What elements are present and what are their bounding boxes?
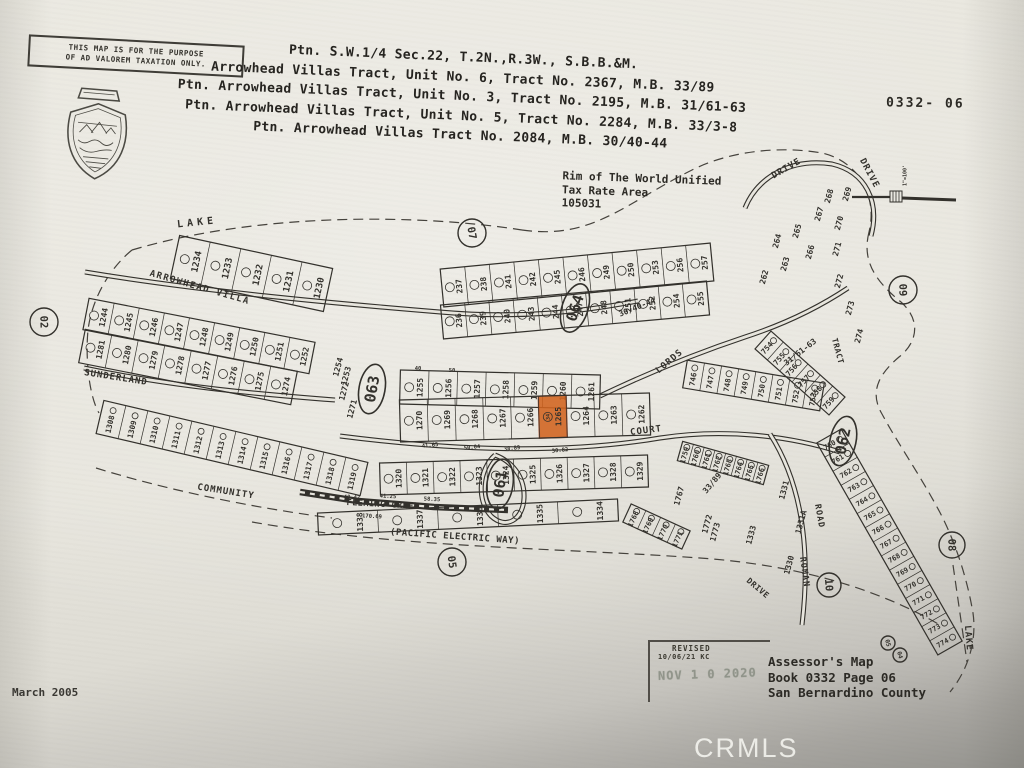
map-label: 31/61-63	[782, 337, 818, 368]
parcel-number: 1326	[555, 464, 565, 484]
map-label: 1330	[782, 554, 796, 575]
parcel-number: 253	[651, 260, 661, 275]
map-label: 40	[415, 366, 422, 372]
revised-date: 10/06/21 KC	[658, 653, 770, 661]
street-name-label: LAKE	[962, 625, 974, 651]
lot-circle	[892, 534, 900, 542]
lot-circle	[175, 423, 182, 430]
parcel-number: 1322	[448, 467, 458, 487]
parcel-number: 1248	[198, 327, 211, 348]
parcel-number: 773	[927, 622, 942, 635]
lot-circle	[218, 369, 229, 380]
parcel-number: 772	[919, 608, 934, 621]
parcel-strip: 12701269126812671266341265126412631262	[399, 393, 650, 442]
page-number: 09	[896, 283, 908, 296]
map-label: 1331	[777, 479, 791, 500]
lot-circle	[852, 463, 860, 471]
page-number: 05	[445, 555, 459, 569]
lot-circle	[445, 282, 455, 292]
parcel-number: 1230	[313, 277, 327, 300]
crmls-watermark: CRMLS	[694, 733, 799, 764]
parcel-number: 1252	[298, 346, 311, 367]
revision-box: REVISED 10/06/21 KC NOV 1 0 2020	[648, 640, 770, 702]
lot-circle	[114, 315, 125, 326]
parcel-number: 762	[838, 467, 853, 480]
lot-circle	[519, 385, 528, 394]
parcel-number: 1268	[470, 409, 480, 429]
parcel-number: 1257	[473, 379, 482, 399]
lot-circle	[940, 619, 948, 627]
block-number: 061	[489, 469, 511, 498]
lot-circle	[617, 266, 627, 276]
parcel-number: 1265	[554, 407, 564, 427]
lot-circle	[464, 472, 473, 481]
street-name-label: SUNDERLAND	[83, 368, 148, 388]
parcel-number: 239	[478, 310, 488, 325]
map-label: 58.35	[424, 496, 441, 503]
highlighted-lot-number: 34	[545, 414, 551, 420]
parcel-number: 1249	[223, 331, 236, 352]
map-label: 262	[758, 269, 770, 285]
parcel-number: 1328	[609, 462, 619, 482]
parcel-number: 1309	[126, 419, 139, 439]
lot-circle	[884, 520, 892, 528]
lot-circle	[932, 605, 940, 613]
parcel-number: 764	[855, 495, 870, 508]
parcel-number: 774	[935, 637, 950, 650]
parcel-strip: 1255125612571258125912601261	[400, 370, 601, 409]
parcel-number: 1312	[192, 435, 205, 455]
lot-circle	[860, 478, 868, 486]
parcel-number: 767	[879, 538, 894, 551]
parcel-number: 749	[739, 380, 750, 395]
parcel-strip: 1768176917701771	[622, 504, 690, 550]
parcel-number: 1270	[415, 411, 425, 431]
street-name-label: (PACIFIC ELECTRIC WAY)	[390, 528, 521, 547]
tax-rate-area-label: Rim of The World Unified Tax Rate Area 1…	[561, 169, 721, 215]
parcel-number: 757	[796, 373, 812, 389]
lot-circle	[690, 259, 700, 269]
map-label: 170.69	[362, 513, 382, 520]
map-label: 41.65	[422, 442, 439, 450]
lot-circle	[138, 353, 149, 364]
parcel-number: 1263	[609, 405, 619, 425]
boundary-road-line	[252, 522, 940, 625]
parcel-number: 1313	[214, 440, 227, 460]
parcel-number: 1323	[475, 466, 485, 486]
lot-circle	[197, 428, 204, 435]
parcel-number: 1337	[415, 509, 425, 529]
parcel-strip: 1320132113221323132413251326132713281329	[380, 455, 649, 495]
lot-circle	[625, 467, 634, 476]
map-label: 270	[833, 215, 845, 231]
parcel-number: 1310	[148, 424, 161, 444]
parcel-number: 1256	[444, 378, 453, 398]
parcel-number: 1311	[170, 429, 183, 449]
lot-circle	[351, 464, 358, 471]
lot-circle	[948, 633, 956, 641]
parcel-number: 1319	[346, 471, 359, 491]
lot-circle	[191, 363, 202, 374]
lot-circle	[568, 271, 578, 281]
scanned-assessor-map-photo: 1234123312321231123023723824124224524624…	[0, 0, 1024, 768]
map-label: 50.04	[464, 444, 482, 452]
parcel-number: 1267	[498, 408, 508, 428]
lot-circle	[433, 383, 442, 392]
street-name-label: ROMAN	[797, 556, 811, 588]
lot-circle	[743, 373, 750, 380]
block-number: 062	[831, 426, 854, 456]
parcel-strip: 1308130913101311131213131314131513161317…	[96, 400, 368, 495]
parcel-number: 1327	[582, 463, 592, 483]
lot-circle	[153, 417, 160, 424]
lot-circle	[241, 438, 248, 445]
parcel-number: 241	[503, 274, 513, 289]
lot-circle	[545, 469, 554, 478]
lot-circle	[760, 376, 767, 383]
parcel-number: 1316	[280, 455, 293, 475]
map-label: 268	[823, 188, 835, 204]
assessor-line: San Bernardino County	[768, 685, 926, 701]
parcel-number: 1314	[236, 445, 249, 465]
lot-circle	[179, 254, 190, 265]
lot-circle	[112, 348, 123, 359]
lot-circle	[662, 297, 672, 307]
lot-circle	[572, 507, 581, 516]
parcel-number: 242	[528, 271, 538, 286]
parcel-number: 256	[675, 257, 685, 272]
lot-circle	[332, 518, 341, 527]
parcel-number: 240	[502, 308, 512, 323]
lot-circle	[641, 263, 651, 273]
lot-circle	[239, 340, 250, 351]
parcel-number: 1264	[582, 406, 592, 426]
lot-circle	[285, 448, 292, 455]
lot-circle	[263, 443, 270, 450]
parcel-number: 248	[599, 300, 609, 315]
parcel-number: 1231	[282, 270, 296, 293]
parcel-strip: 17591760176117621763176417651766	[677, 441, 769, 485]
map-label: 266	[804, 244, 816, 260]
lot-circle	[462, 384, 471, 393]
lot-circle	[411, 473, 420, 482]
map-label: 267	[813, 206, 825, 222]
lot-circle	[777, 379, 784, 386]
map-label: 272	[833, 273, 845, 289]
parcel-number: 1318	[324, 466, 337, 486]
scale-label: 1"=100'	[903, 165, 909, 186]
parcel-number: 1335	[535, 504, 545, 524]
map-label: 38.89	[504, 445, 521, 453]
parcel-number: 1770	[656, 523, 670, 542]
lot-circle	[469, 280, 479, 290]
parcel-number: 1768	[626, 510, 640, 529]
parcel-number: 1281	[94, 339, 107, 360]
parcel-number: 236	[454, 313, 464, 328]
lot-circle	[515, 413, 524, 422]
lot-circle	[109, 407, 116, 414]
lot-circle	[404, 416, 413, 425]
parcel-number: 1280	[121, 344, 134, 365]
lot-circle	[916, 577, 924, 585]
map-label: 41.25	[380, 493, 397, 500]
parcel-number: 254	[672, 293, 682, 308]
lot-circle	[164, 325, 175, 336]
lot-circle	[547, 386, 556, 395]
lot-circle	[244, 374, 255, 385]
lot-circle	[271, 274, 282, 285]
parcel-number: 1232	[251, 263, 265, 286]
lot-circle	[598, 468, 607, 477]
lot-circle	[599, 411, 608, 420]
parcel-number: 1769	[641, 516, 655, 535]
lot-circle	[460, 415, 469, 424]
sheet-number: 0332- 06	[886, 95, 965, 111]
parcel-number: 1276	[227, 365, 240, 386]
map-label: 264	[771, 233, 783, 249]
lot-circle	[392, 516, 401, 525]
parcel-number: 770	[903, 580, 918, 593]
lot-circle	[572, 469, 581, 478]
parcel-number: 1262	[637, 404, 647, 424]
map-label: 273	[844, 300, 856, 316]
parcel-number: 751	[773, 386, 784, 401]
parcel-number: 1308	[104, 414, 117, 434]
boundary-road-line	[867, 232, 974, 692]
lot-circle	[384, 474, 393, 483]
lot-circle	[139, 320, 150, 331]
parcel-number: 748	[722, 377, 733, 392]
lot-circle	[726, 370, 733, 377]
lot-circle	[494, 278, 504, 288]
parcel-number: 747	[705, 375, 716, 390]
lot-circle	[900, 548, 908, 556]
map-date: March 2005	[12, 686, 78, 699]
street-name-label: DRIVE	[745, 576, 771, 600]
lot-circle	[290, 349, 301, 360]
parcel-number: 255	[696, 291, 706, 306]
parcel-number: 769	[895, 566, 910, 579]
lot-circle	[626, 410, 635, 419]
assessor-info: Assessor's Map Book 0332 Page 06 San Ber…	[768, 654, 926, 701]
street-name-label: DRIVE	[857, 157, 881, 190]
parcel-number: 243	[527, 306, 537, 321]
parcel-strip: 7607617627637647657667677687697707717727…	[817, 429, 962, 655]
parcel-number: 1255	[415, 378, 424, 398]
parcel-number: 768	[887, 552, 902, 565]
map-label: 1271	[345, 398, 359, 419]
map-label: 1331A	[794, 509, 809, 535]
lot-circle	[488, 414, 497, 423]
lot-circle	[214, 335, 225, 346]
map-label: 30.82	[552, 447, 569, 455]
lot-circle	[219, 433, 226, 440]
date-stamp: NOV 1 0 2020	[658, 665, 770, 683]
page-number: 02	[37, 315, 49, 328]
parcel-number: 1278	[174, 355, 187, 376]
parcel-number: 750	[756, 383, 767, 398]
revised-label: REVISED	[672, 644, 770, 653]
lot-circle	[432, 415, 441, 424]
parcel-number: 249	[601, 264, 611, 279]
page-number: 07	[464, 226, 478, 241]
street-name-label: DRIVE	[770, 157, 803, 182]
parcel-number: 1245	[123, 312, 136, 333]
street-name-label: COMMUNITY	[197, 483, 256, 502]
map-label: 50	[449, 368, 456, 374]
parcel-number: 246	[577, 267, 587, 282]
parcel-number: 245	[552, 269, 562, 284]
lot-circle	[691, 365, 698, 372]
lot-circle	[666, 261, 676, 271]
map-label: 33/89	[701, 471, 723, 495]
lot-circle	[687, 295, 697, 305]
map-label: 1767	[672, 485, 686, 506]
lot-circle	[445, 316, 455, 326]
lot-circle	[210, 260, 221, 271]
page-number: 05	[883, 639, 892, 648]
parcel-number: 1320	[394, 468, 404, 488]
lot-circle	[876, 506, 884, 514]
lot-circle	[241, 267, 252, 278]
map-label: 271	[831, 241, 843, 257]
map-label: 265	[791, 223, 803, 239]
map-label: 1333	[744, 524, 758, 545]
lot-circle	[490, 385, 499, 394]
street-name-label: LAKE	[177, 215, 218, 230]
street-name-label: TRACT	[830, 337, 846, 365]
parcel-number: 765	[863, 509, 878, 522]
lot-circle	[868, 492, 876, 500]
lot-circle	[543, 273, 553, 283]
parcel-number: 1334	[595, 501, 605, 521]
parcel-number: 257	[700, 255, 710, 270]
lot-circle	[307, 454, 314, 461]
parcel-number: 250	[626, 262, 636, 277]
parcel-number: 1325	[528, 464, 538, 484]
parcel-number: 1261	[587, 382, 596, 402]
map-label: 40.47	[344, 494, 361, 501]
lot-circle	[571, 411, 580, 420]
parcel-number: 1250	[248, 336, 261, 357]
parcel-number: 1244	[98, 307, 111, 328]
lot-circle	[329, 459, 336, 466]
lot-circle	[302, 280, 313, 291]
lot-circle	[519, 275, 529, 285]
parcel-number: 1277	[200, 360, 213, 381]
map-label: 269	[841, 186, 853, 202]
lot-circle	[452, 513, 461, 522]
parcel-number: 763	[847, 481, 862, 494]
lot-circle	[924, 591, 932, 599]
parcel-number: 1315	[258, 451, 271, 471]
lot-circle	[708, 367, 715, 374]
page-number: 08	[945, 538, 957, 551]
assessor-line: Assessor's Map	[768, 654, 926, 670]
parcel-number: 1234	[190, 250, 204, 274]
parcel-number: 1274	[280, 376, 293, 397]
parcel-number: 1251	[273, 341, 286, 362]
parcel-number: 1275	[253, 371, 266, 392]
parcel-number: 746	[687, 371, 698, 386]
parcel-number: 1233	[221, 257, 235, 280]
parcel-number: 1336	[475, 506, 485, 526]
parcel-number: 1317	[302, 461, 315, 481]
lot-circle	[265, 345, 276, 356]
parcel-number: 1329	[635, 461, 645, 481]
lot-circle	[165, 358, 176, 369]
parcel-number: 244	[551, 304, 561, 319]
parcel-number: 752	[790, 389, 801, 404]
parcel-number: 771	[911, 594, 926, 607]
parcel-number: 1247	[173, 322, 186, 343]
parcel-number: 1279	[147, 350, 160, 371]
map-label: 263	[779, 256, 791, 272]
parcel-number: 237	[454, 279, 464, 294]
lot-circle	[908, 562, 916, 570]
parcel-number: 1246	[148, 317, 161, 338]
parcel-number: 238	[479, 276, 489, 291]
parcel-number: 1321	[421, 468, 431, 488]
lot-circle	[271, 379, 282, 390]
lot-circle	[189, 330, 200, 341]
lot-circle	[592, 268, 602, 278]
assessor-line: Book 0332 Page 06	[768, 670, 926, 686]
lot-circle	[131, 412, 138, 419]
lot-circle	[405, 383, 414, 392]
parcel-number: 766	[871, 524, 886, 537]
map-label: 274	[853, 328, 865, 344]
parcel-number: 1266	[526, 407, 536, 427]
parcel-number: 1269	[443, 410, 453, 430]
street-name-label: ROAD	[812, 503, 826, 529]
page-number: 10	[822, 578, 835, 592]
lot-circle	[438, 473, 447, 482]
block-number: 063	[361, 374, 383, 404]
